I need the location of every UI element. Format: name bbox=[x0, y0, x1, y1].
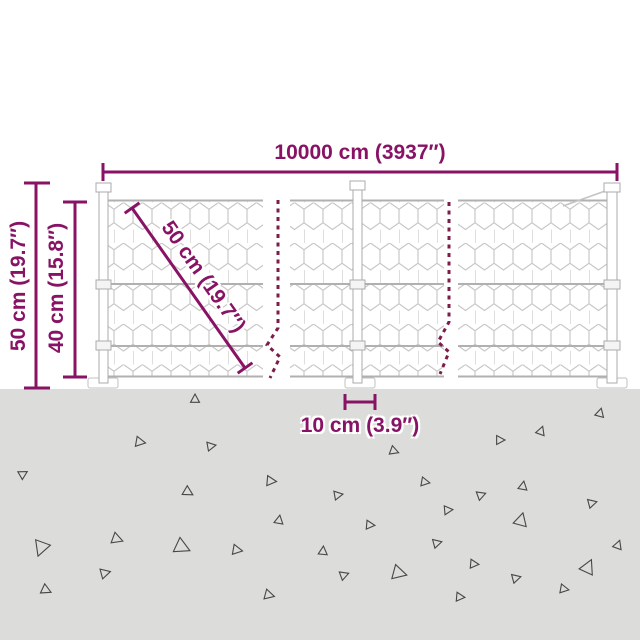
label-base-width: 10 cm (3.9″) bbox=[250, 414, 470, 438]
label-post-height: 50 cm (19.7″) bbox=[7, 181, 31, 391]
post-cap-right bbox=[604, 183, 620, 192]
mesh-section-right bbox=[458, 200, 611, 377]
fence-diagram-drawing bbox=[0, 0, 640, 640]
product-dimension-diagram: 10000 cm (3937″) 50 cm (19.7″) 40 cm (15… bbox=[0, 0, 640, 640]
dimension-line-total-length bbox=[103, 163, 617, 181]
post-cap-middle bbox=[350, 181, 365, 190]
post-cap-left bbox=[96, 183, 111, 192]
label-mesh-height: 40 cm (15.8″) bbox=[45, 183, 69, 393]
label-total-length: 10000 cm (3937″) bbox=[103, 141, 617, 165]
mesh-section-middle bbox=[290, 200, 444, 377]
